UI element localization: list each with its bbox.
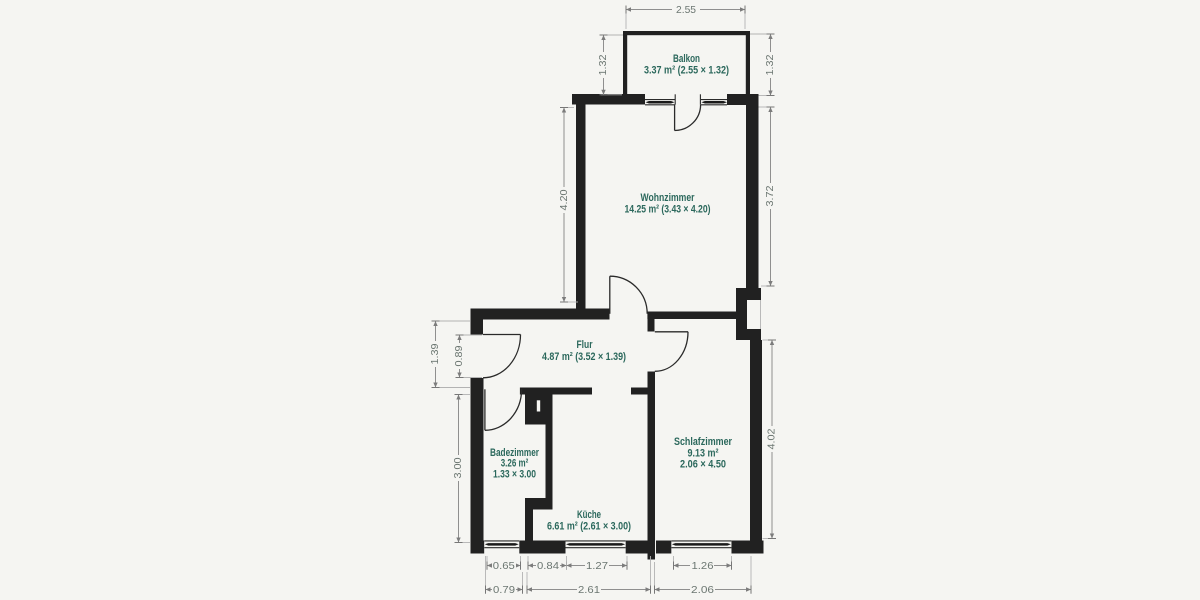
svg-text:1.26: 1.26 — [692, 560, 714, 572]
svg-text:2.06 × 4.50: 2.06 × 4.50 — [680, 459, 726, 471]
svg-text:14.25 m² (3.43 × 4.20): 14.25 m² (3.43 × 4.20) — [625, 204, 711, 216]
svg-text:2.06: 2.06 — [691, 584, 714, 596]
svg-text:0.89: 0.89 — [453, 345, 465, 366]
svg-text:3.72: 3.72 — [764, 185, 776, 206]
svg-text:1.32: 1.32 — [597, 54, 609, 75]
svg-text:1.27: 1.27 — [586, 560, 608, 572]
svg-text:1.32: 1.32 — [764, 54, 776, 75]
svg-text:0.79: 0.79 — [493, 584, 515, 596]
svg-text:4.02: 4.02 — [766, 428, 778, 449]
svg-text:3.00: 3.00 — [452, 457, 464, 478]
svg-text:1.39: 1.39 — [429, 343, 441, 364]
svg-text:Wohnzimmer: Wohnzimmer — [641, 192, 696, 204]
svg-text:Schlafzimmer: Schlafzimmer — [674, 436, 733, 448]
svg-text:2.61: 2.61 — [578, 584, 600, 596]
svg-text:Balkon: Balkon — [673, 53, 700, 65]
svg-text:4.20: 4.20 — [558, 189, 570, 210]
svg-text:Flur: Flur — [577, 339, 594, 351]
svg-text:4.87 m² (3.52 × 1.39): 4.87 m² (3.52 × 1.39) — [542, 351, 626, 363]
svg-text:0.84: 0.84 — [537, 560, 559, 572]
svg-text:3.37 m² (2.55 × 1.32): 3.37 m² (2.55 × 1.32) — [644, 65, 729, 77]
svg-text:1.33 × 3.00: 1.33 × 3.00 — [493, 469, 536, 481]
svg-text:0.65: 0.65 — [493, 560, 515, 572]
svg-text:6.61 m² (2.61 × 3.00): 6.61 m² (2.61 × 3.00) — [547, 521, 631, 533]
svg-text:2.55: 2.55 — [676, 4, 696, 16]
svg-text:Küche: Küche — [577, 509, 601, 521]
